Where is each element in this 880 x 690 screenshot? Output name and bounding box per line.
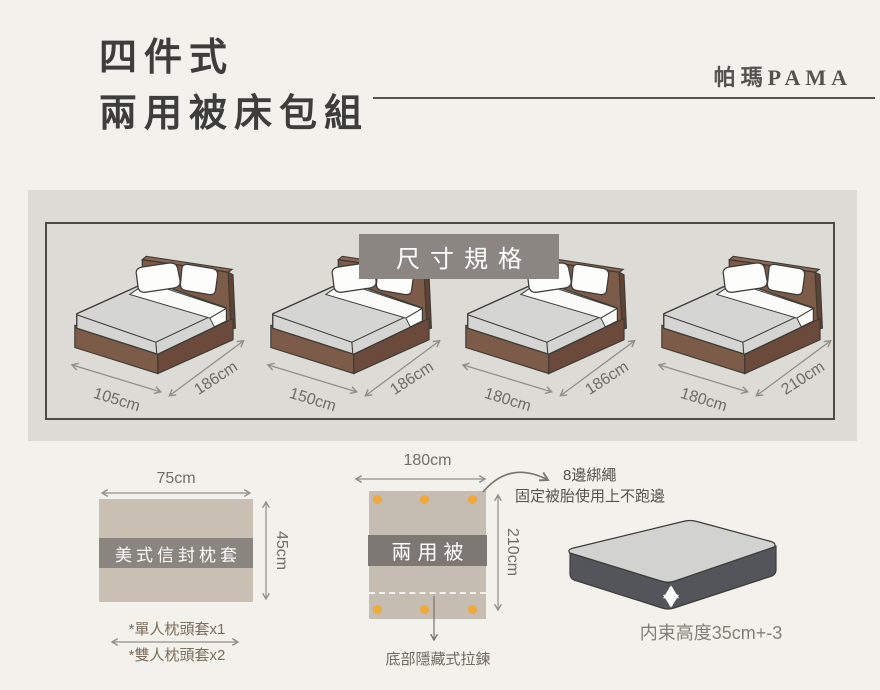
- mattress-illustration: [555, 515, 785, 615]
- quilt-height-arrow: [493, 492, 503, 613]
- bed-width-label: 150cm: [287, 385, 338, 415]
- bed-width-label: 180cm: [679, 385, 730, 415]
- pillow-width-arrow: [99, 488, 253, 498]
- brand-divider-line: [373, 97, 875, 99]
- quilt-tie-note-desc: 固定被胎使用上不跑邊: [515, 485, 665, 506]
- bed-width-label: 180cm: [483, 385, 534, 415]
- tie-dot: [420, 605, 429, 614]
- bed-card-king: 180cm 210cm: [656, 252, 849, 417]
- pillowcase-diagram: 75cm 美式信封枕套 45cm *單人枕頭套x1 *雙人枕頭套x2: [97, 470, 307, 670]
- pillow-note-single: *單人枕頭套x1: [92, 618, 262, 639]
- bed-length-label: 186cm: [387, 358, 436, 398]
- bed-card-single: 105cm 186cm: [69, 252, 262, 417]
- size-spec-badge: 尺寸規格: [359, 234, 559, 279]
- bed-length-label: 186cm: [191, 358, 240, 398]
- mattress-diagram: 内束高度35cm+-3: [555, 515, 805, 655]
- quilt-width-label: 180cm: [369, 452, 486, 470]
- pillowcase-name-band: 美式信封枕套: [99, 538, 253, 568]
- quilt-zipper-arrow: [430, 596, 440, 644]
- bed-width-label: 105cm: [91, 385, 142, 415]
- pillow-height-arrow: [261, 499, 271, 602]
- pillow-height-label: 45cm: [272, 499, 290, 602]
- pillow-width-label: 75cm: [99, 470, 253, 488]
- brand-logo: 帕瑪PAMA: [714, 60, 852, 92]
- bed-length-label: 186cm: [583, 358, 632, 398]
- tie-dot: [468, 495, 477, 504]
- page-title-line1: 四件式: [99, 30, 369, 86]
- quilt-width-arrow: [353, 474, 488, 484]
- pillow-note-double: *雙人枕頭套x2: [92, 644, 262, 665]
- page-title: 四件式 兩用被床包組: [99, 30, 369, 142]
- size-spec-panel: 105cm 186cm 150cm 186cm 180cm 186cm: [28, 190, 857, 441]
- size-spec-frame: 105cm 186cm 150cm 186cm 180cm 186cm: [45, 222, 835, 420]
- quilt-zipper-note: 底部隱藏式拉鍊: [363, 648, 513, 669]
- tie-dot: [373, 605, 382, 614]
- pillowcase-shape: 美式信封枕套: [99, 499, 253, 602]
- product-spec-page: { "header": { "title_line1": "四件式", "tit…: [0, 0, 880, 690]
- quilt-height-label: 210cm: [503, 492, 521, 613]
- tie-dot: [373, 495, 382, 504]
- bed-illustration: 180cm 210cm: [656, 252, 849, 416]
- mattress-height-note: 内束高度35cm+-3: [621, 619, 801, 645]
- tie-dot: [420, 495, 429, 504]
- bed-sizes-row: 105cm 186cm 150cm 186cm 180cm 186cm: [66, 252, 852, 448]
- page-title-line2: 兩用被床包組: [99, 86, 369, 142]
- bed-length-label: 210cm: [779, 358, 828, 398]
- bed-illustration: 105cm 186cm: [69, 252, 262, 416]
- quilt-tie-note-title: 8邊綁繩: [563, 464, 616, 485]
- quilt-shape: 兩用被: [369, 491, 486, 619]
- quilt-name-band: 兩用被: [368, 535, 487, 566]
- quilt-zipper-dashed-line: [369, 592, 486, 594]
- tie-dot: [468, 605, 477, 614]
